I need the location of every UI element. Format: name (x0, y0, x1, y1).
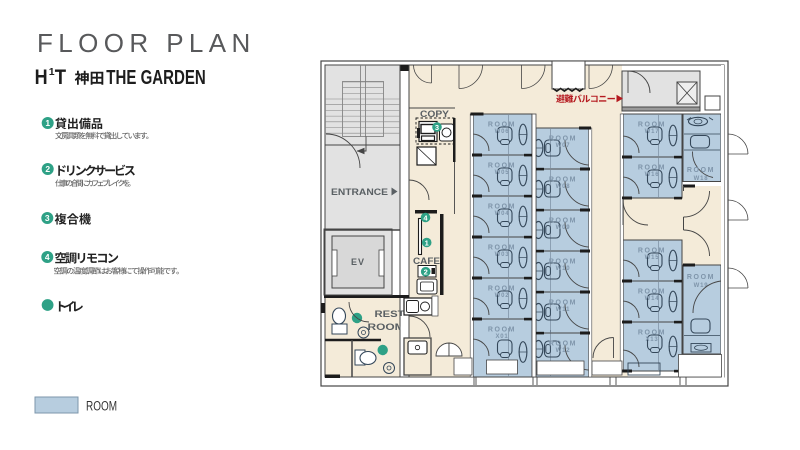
svg-text:2: 2 (424, 268, 428, 277)
svg-text:ROOM: ROOM (368, 322, 405, 333)
svg-text:W16: W16 (645, 172, 660, 178)
svg-text:ROOM: ROOM (488, 121, 516, 128)
svg-text:ROOM: ROOM (488, 285, 516, 292)
svg-text:H: H (35, 66, 48, 89)
svg-text:ROOM: ROOM (488, 203, 516, 210)
svg-text:ROOM: ROOM (549, 217, 577, 224)
svg-text:1: 1 (425, 239, 429, 248)
svg-text:ROOM: ROOM (687, 167, 715, 174)
svg-text:W08: W08 (556, 184, 571, 190)
svg-text:ROOM: ROOM (488, 244, 516, 251)
svg-text:W15: W15 (645, 255, 660, 261)
svg-text:W06: W06 (495, 129, 510, 135)
svg-text:ROOM: ROOM (638, 121, 666, 128)
svg-text:W04: W04 (495, 211, 510, 217)
svg-text:EV: EV (351, 257, 365, 267)
svg-text:W12: W12 (556, 348, 571, 354)
svg-text:2: 2 (45, 164, 50, 174)
svg-text:ROOM: ROOM (488, 326, 516, 333)
svg-text:ROOM: ROOM (638, 329, 666, 336)
svg-text:4: 4 (45, 252, 50, 262)
svg-text:ENTRANCE: ENTRANCE (331, 187, 388, 198)
svg-text:W07: W07 (556, 143, 571, 149)
svg-text:W17: W17 (645, 129, 660, 135)
svg-text:ROOM: ROOM (638, 288, 666, 295)
svg-text:THE GARDEN: THE GARDEN (106, 66, 206, 89)
svg-text:W03: W03 (495, 252, 510, 258)
svg-text:ROOM: ROOM (549, 135, 577, 142)
svg-text:ROOM: ROOM (86, 399, 117, 414)
svg-text:W11: W11 (556, 307, 570, 313)
svg-text:W02: W02 (495, 293, 510, 299)
svg-text:1: 1 (49, 66, 55, 78)
svg-text:3: 3 (435, 123, 439, 132)
svg-text:X13: X13 (645, 337, 658, 343)
svg-text:W19: W19 (694, 283, 709, 289)
svg-text:3: 3 (45, 213, 50, 223)
svg-text:ROOM: ROOM (549, 340, 577, 347)
svg-text:ROOM: ROOM (687, 274, 715, 281)
svg-text:W09: W09 (556, 225, 571, 231)
svg-text:ROOM: ROOM (488, 162, 516, 169)
svg-text:ROOM: ROOM (549, 258, 577, 265)
svg-text:ROOM: ROOM (549, 299, 577, 306)
svg-text:W14: W14 (645, 296, 660, 302)
svg-text:ROOM: ROOM (549, 176, 577, 183)
svg-text:X01: X01 (495, 334, 508, 340)
svg-text:FLOOR PLAN: FLOOR PLAN (37, 28, 256, 58)
svg-text:ROOM: ROOM (638, 247, 666, 254)
svg-text:T: T (55, 66, 66, 89)
svg-text:ROOM: ROOM (638, 164, 666, 171)
svg-text:W10: W10 (556, 266, 571, 272)
svg-text:W18: W18 (694, 176, 709, 182)
svg-text:W05: W05 (495, 170, 510, 176)
svg-text:REST: REST (375, 309, 405, 320)
svg-text:1: 1 (45, 118, 50, 128)
